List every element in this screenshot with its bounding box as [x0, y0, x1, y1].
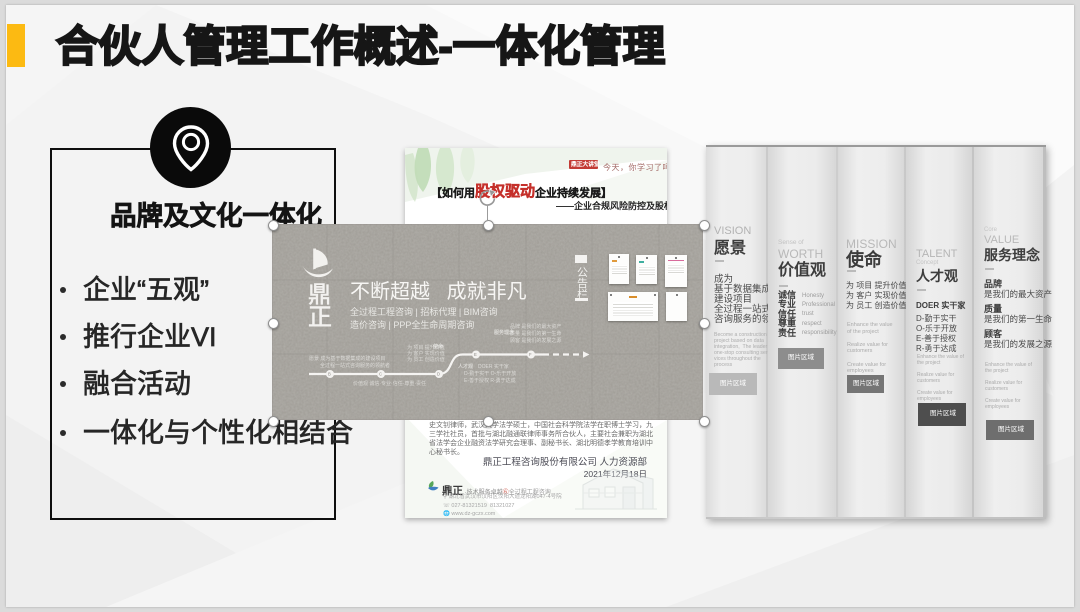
svg-text:D-勤于实干 O-乐于开放: D-勤于实干 O-乐于开放	[464, 370, 516, 377]
svg-text:价值观 诚信·专业·信任·尊重·责任: 价值观 诚信·专业·信任·尊重·责任	[353, 380, 426, 387]
svg-text:E-善于授权 R-勇于达成: E-善于授权 R-勇于达成	[464, 377, 516, 384]
svg-text:为 客户 实现价值: 为 客户 实现价值	[407, 350, 445, 357]
svg-text:C: C	[379, 372, 382, 377]
svg-text:为 员工 创造价值: 为 员工 创造价值	[407, 356, 445, 363]
svg-text:愿景 成为基于数据集成的建设项目: 愿景 成为基于数据集成的建设项目	[309, 355, 385, 362]
svg-text:B: B	[328, 372, 331, 377]
svg-text:DOER 实干家: DOER 实干家	[478, 363, 509, 370]
svg-text:顾客 是我们的发展之源: 顾客 是我们的发展之源	[510, 337, 561, 344]
svg-text:品牌 是我们的最大资产: 品牌 是我们的最大资产	[510, 323, 561, 330]
svg-text:使命: 使命	[432, 343, 444, 350]
svg-text:人才观: 人才观	[457, 363, 473, 370]
svg-text:D: D	[437, 372, 440, 377]
svg-text:F: F	[529, 352, 532, 357]
svg-text:质量 是我们的第一生命: 质量 是我们的第一生命	[510, 330, 561, 337]
svg-text:全过程一站式咨询服务的领航者: 全过程一站式咨询服务的领航者	[320, 362, 390, 369]
svg-text:E: E	[474, 352, 477, 357]
